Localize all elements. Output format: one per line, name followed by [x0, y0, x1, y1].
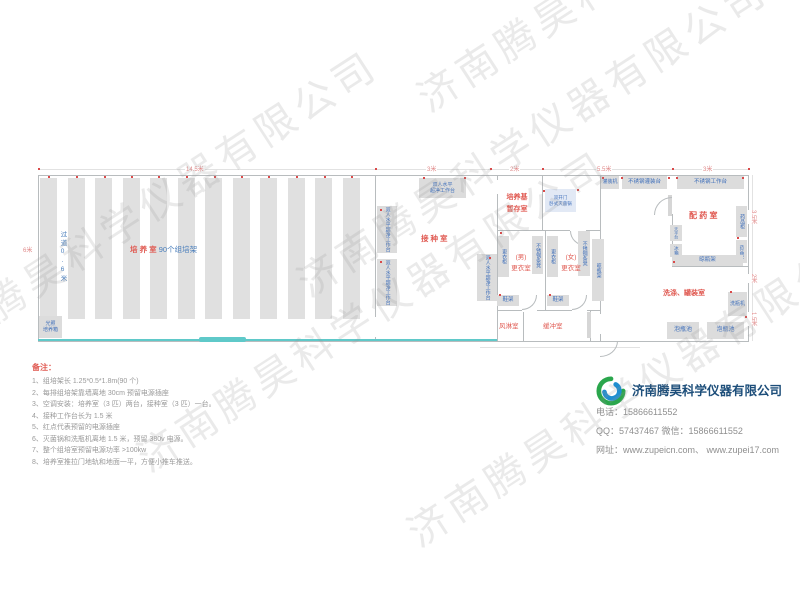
- power-outlet-dots: [0, 0, 2, 2]
- aisle-label: 过道0.6米: [57, 231, 67, 284]
- sterilizer: 双开门 卧式灭菌锅: [545, 189, 576, 212]
- dim-right-washing: 2米: [748, 274, 759, 283]
- women-line2: 更衣室: [561, 265, 581, 272]
- sliding-door-track: [38, 339, 497, 341]
- culture-rack: [68, 178, 85, 319]
- door-gap-culture: [374, 317, 377, 337]
- note-item: 7、整个组培室预留电源功率 >100kw: [32, 445, 216, 457]
- note-item: 5、红点代表预留的电源插座: [32, 422, 216, 434]
- medium-storage-line2: 暂存室: [507, 206, 528, 213]
- dim-top-storage: 2米: [509, 164, 520, 173]
- culture-rack: [260, 178, 277, 319]
- clean-bench-left-1: 双人水平超净工作台: [377, 206, 397, 253]
- notes-title: 备注：: [32, 362, 216, 373]
- dispensing-room-label: 配 药 室: [689, 210, 717, 221]
- wall-storage-sterilizer: [542, 175, 543, 230]
- note-item: 6、灭菌锅和洗瓶机离地 1.5 米，预留 380v 电源。: [32, 434, 216, 446]
- dim-right-pool: 1.5米: [748, 312, 759, 326]
- soak-pool-2: 泡瓶池: [707, 322, 744, 339]
- clean-bench-right: 双人水平超净工作台: [477, 254, 497, 301]
- work-table: 不锈钢工作台: [677, 176, 744, 189]
- company-qq-wechat: QQ：57437467 微信：15866611552: [596, 424, 782, 437]
- company-phone: 电话：15866611552: [596, 405, 782, 418]
- culture-rack: [315, 178, 332, 319]
- incubator-line1: 光照: [45, 321, 55, 327]
- company-logo-icon: [596, 376, 626, 406]
- dim-left-depth: 6米: [22, 245, 33, 254]
- wall-dispensing-bottom: [672, 266, 748, 267]
- door-arc-entry: [600, 341, 618, 357]
- filling-table: 不锈钢灌装台: [622, 176, 667, 189]
- bottle-washer: 洗瓶机: [728, 292, 747, 316]
- note-item: 3、空调安装：培养室（3 匹）两台，接种室（3 匹）一台。: [32, 399, 216, 411]
- sterilizer-line2: 卧式灭菌锅: [549, 201, 572, 206]
- wall-men-women: [545, 230, 546, 310]
- note-item: 1、组培架长 1.25*0.5*1.8m(90 个): [32, 376, 216, 388]
- shoe-rack-men: 鞋架: [497, 295, 519, 306]
- medicine-cabinet-1: 药品柜: [736, 206, 747, 237]
- medium-storage-label: 培养基 暂存室: [501, 192, 533, 216]
- clean-bench-top: 双人水平 超净工作台: [419, 178, 466, 198]
- notes-section: 备注： 1、组培架长 1.25*0.5*1.8m(90 个) 2、每排组培架靠墙…: [32, 362, 216, 468]
- watermark-text: 济南腾昊科学仪器有限公司: [404, 0, 800, 123]
- company-websites: 网址：www.zupeicn.com、 www.zupei17.com: [596, 443, 782, 456]
- company-info: 济南腾昊科学仪器有限公司 电话：15866611552 QQ：57437467 …: [596, 376, 782, 456]
- dim-top-inoculation: 3米: [426, 164, 437, 173]
- dim-top-middle: 5.5米: [596, 164, 612, 173]
- note-item: 4、接种工作台长为 1.5 米: [32, 411, 216, 423]
- light-incubator: 光照 培养箱: [39, 316, 62, 338]
- top-dimension-line: [38, 169, 748, 170]
- washing-room-label: 洗涤、罐装室: [663, 288, 705, 298]
- men-line2: 更衣室: [511, 265, 531, 272]
- culture-rack: [95, 178, 112, 319]
- company-name: 济南腾昊科学仪器有限公司: [632, 380, 782, 399]
- dim-right-dispensing: 3.5米: [748, 210, 759, 224]
- clean-bench-line2: 超净工作台: [430, 188, 455, 194]
- door-gap-washing: [599, 314, 602, 334]
- culture-rack: [40, 178, 57, 319]
- door-leaf-vestibule: [587, 312, 591, 338]
- culture-rack: [288, 178, 305, 319]
- sliding-door: [199, 337, 246, 342]
- medium-storage-line1: 培养基: [507, 194, 528, 201]
- culture-room-label: 培 养 室 90个组培架: [130, 244, 197, 255]
- note-item: 8、培养室推拉门地轨和地面一平，方便小推车推送。: [32, 457, 216, 469]
- note-item: 2、每排组培架靠墙离地 30cm 预留电源插座: [32, 388, 216, 400]
- air-shower-label: 风淋室: [499, 320, 519, 330]
- sterilizer-line1: 双开门: [554, 195, 568, 200]
- culture-rack: [343, 178, 360, 319]
- men-changing-label: (男) 更衣室: [506, 252, 536, 274]
- women-line1: (女): [566, 254, 577, 261]
- dim-top-dispensing: 3米: [702, 164, 713, 173]
- soak-pool-1: 泡瓶池: [667, 322, 699, 339]
- women-changing-label: (女) 更衣室: [556, 252, 586, 274]
- men-line1: (男): [516, 254, 527, 261]
- culture-room-racks-count: 90个组培架: [159, 245, 197, 254]
- culture-rack: [205, 178, 222, 319]
- buffer-room-label: 缓冲室: [543, 320, 563, 330]
- drying-rack-horizontal: 晾瓶架: [672, 255, 743, 266]
- clean-bench-left-2: 双人水平超净工作台: [377, 259, 397, 306]
- filling-machine: 灌装机: [601, 176, 619, 189]
- door-gap-storage: [496, 180, 499, 194]
- culture-rack: [233, 178, 250, 319]
- clean-bench-line1: 双人水平: [432, 182, 452, 188]
- floor-plan-page: { "watermark": "济南腾昊科学仪器有限公司", "dimensio…: [0, 0, 800, 600]
- dim-top-culture: 14.5米: [185, 164, 205, 173]
- culture-room-name: 培 养 室: [130, 245, 157, 254]
- balance-table: 天平台: [670, 225, 682, 241]
- shoe-rack-women: 鞋架: [547, 295, 569, 306]
- inoculation-room-label: 接种室: [421, 233, 450, 244]
- wall-airshower-buffer: [523, 310, 524, 341]
- incubator-line2: 培养箱: [43, 327, 58, 333]
- drying-rack-vertical: 晾瓶架: [592, 239, 604, 301]
